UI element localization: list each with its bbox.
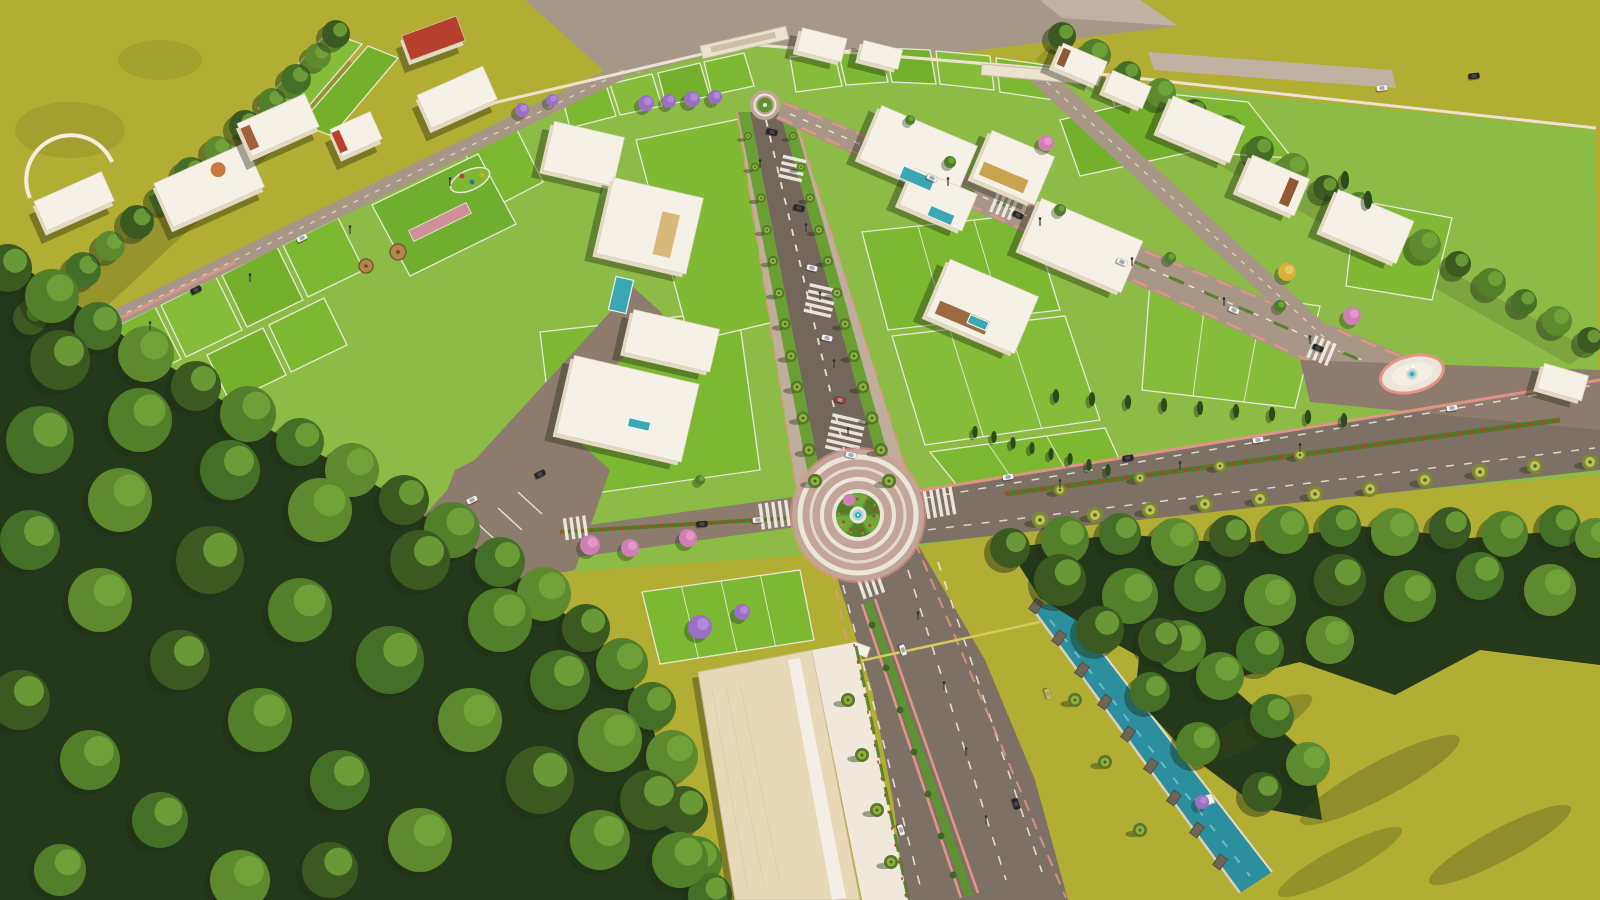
tree-highlight <box>1268 698 1290 720</box>
tree-highlight <box>234 856 264 886</box>
pink-tree-highlight <box>628 541 637 550</box>
car <box>695 521 707 529</box>
palm-crown <box>1103 760 1106 763</box>
tree-highlight <box>1092 42 1108 58</box>
lamp-head <box>847 427 850 430</box>
tree-highlight <box>1422 232 1438 248</box>
palm-crown <box>1139 477 1142 480</box>
tree-highlight <box>1521 292 1534 305</box>
tree-highlight <box>14 676 44 706</box>
tree-highlight <box>1226 519 1247 540</box>
tree-highlight <box>1335 559 1361 585</box>
palm-crown <box>1073 698 1076 701</box>
tree-highlight <box>383 633 417 667</box>
field-shadow-patch <box>118 40 202 80</box>
lamp-head <box>965 747 968 750</box>
tree-highlight <box>1194 726 1216 748</box>
lamp-head <box>1309 335 1312 338</box>
car-cabin <box>1471 74 1476 78</box>
cypress-tree <box>1305 410 1311 424</box>
cypress-tree <box>1364 191 1372 209</box>
tree-highlight <box>94 574 126 606</box>
tree-highlight <box>314 484 346 516</box>
tree-highlight <box>647 687 671 711</box>
tree-highlight <box>1500 516 1523 539</box>
tree-highlight <box>1455 254 1468 267</box>
tree-highlight <box>706 877 728 899</box>
palm-crown <box>792 135 794 137</box>
cypress-tree <box>1105 464 1110 476</box>
tree-highlight <box>1488 271 1503 286</box>
fountain-jet <box>857 514 859 516</box>
tree-highlight <box>674 838 702 866</box>
tree-highlight <box>1587 330 1600 343</box>
roundabout-fountain <box>763 103 767 107</box>
tree-highlight <box>1475 557 1499 581</box>
lamp-head <box>759 159 762 162</box>
purple-tree-highlight <box>713 92 720 99</box>
lamp-head <box>943 681 946 684</box>
street-tree-highlight <box>949 158 955 164</box>
lamp-head <box>1059 479 1062 482</box>
cypress-tree <box>1029 442 1034 454</box>
lamp-head <box>947 177 950 180</box>
median-shrub <box>883 665 890 672</box>
lamp-head <box>1131 257 1134 260</box>
tree-highlight <box>1258 776 1278 796</box>
tree-highlight <box>3 249 27 273</box>
palm-crown <box>853 355 856 358</box>
tree-highlight <box>1323 178 1336 191</box>
tree-highlight <box>1257 139 1271 153</box>
palm-crown <box>836 292 838 294</box>
tree-highlight <box>494 594 526 626</box>
palm-crown <box>778 292 780 294</box>
scene-canvas <box>0 0 1600 900</box>
palm-crown <box>766 229 768 231</box>
tree-highlight <box>84 736 114 766</box>
palm-crown <box>860 753 863 756</box>
palm-crown <box>1258 497 1262 501</box>
central-roundabout <box>791 448 925 582</box>
tree-highlight <box>1545 569 1571 595</box>
tree-highlight <box>594 816 624 846</box>
tree-highlight <box>294 584 326 616</box>
cypress-tree <box>991 431 996 443</box>
tree-highlight <box>1158 81 1173 96</box>
tree-highlight <box>495 542 520 567</box>
island-pink-tree <box>843 494 855 506</box>
car-cabin <box>1379 86 1384 90</box>
tree-highlight <box>33 413 67 447</box>
tree-highlight <box>134 394 166 426</box>
palm-crown <box>809 197 811 199</box>
cypress-tree <box>1233 404 1239 418</box>
palm-crown <box>1313 492 1317 496</box>
palm-crown <box>871 417 874 420</box>
tree-highlight <box>414 536 444 566</box>
tree-highlight <box>539 572 566 599</box>
median-shrub <box>897 707 904 714</box>
palm-crown <box>818 229 820 231</box>
car-cabin <box>755 518 760 522</box>
palm-crown <box>1299 454 1302 457</box>
tree-highlight <box>1336 509 1357 530</box>
palm-crown <box>1148 508 1152 512</box>
car <box>751 517 763 525</box>
palm-crown <box>1423 478 1427 482</box>
car-cabin <box>699 522 704 526</box>
median-shrub <box>925 791 932 798</box>
tree-highlight <box>1006 532 1026 552</box>
tree-highlight <box>1405 575 1431 601</box>
play-equipment-blue <box>470 180 475 185</box>
cypress-tree <box>1048 448 1053 460</box>
tree-highlight <box>414 814 446 846</box>
lamp-head <box>985 815 988 818</box>
tree-highlight <box>324 848 352 876</box>
tree-highlight <box>1055 559 1081 585</box>
palm-crown <box>1368 487 1372 491</box>
tree-highlight <box>679 791 703 815</box>
street-tree-highlight <box>1169 254 1175 260</box>
palm-crown <box>1588 460 1592 464</box>
street-tree-highlight <box>699 476 704 481</box>
palm-crown <box>754 166 756 168</box>
street-tree-highlight <box>1059 206 1065 212</box>
tree-highlight <box>203 533 237 567</box>
cypress-tree <box>1086 459 1091 471</box>
tree-highlight <box>1124 574 1152 602</box>
tree-highlight <box>1304 746 1326 768</box>
cypress-tree <box>1161 398 1167 412</box>
purple-tree-highlight <box>551 96 557 102</box>
tree-highlight <box>154 798 182 826</box>
tree-highlight <box>1280 511 1304 535</box>
tree-highlight <box>644 776 674 806</box>
purple-tree-highlight <box>697 618 709 630</box>
yellow-tree-highlight <box>1285 265 1294 274</box>
palm-crown <box>808 449 811 452</box>
purple-tree-highlight <box>1200 797 1207 804</box>
tree-highlight <box>1325 621 1349 645</box>
lamp-head <box>1179 461 1182 464</box>
palm-crown <box>784 323 787 326</box>
tree-highlight <box>24 516 54 546</box>
tree-highlight <box>47 274 74 301</box>
tree-highlight <box>533 753 567 787</box>
north-roundabout <box>750 90 780 120</box>
palm-crown <box>802 417 805 420</box>
purple-tree-highlight <box>667 96 674 103</box>
lamp-head <box>249 273 252 276</box>
tree-highlight <box>1170 523 1194 547</box>
palm-crown <box>827 260 829 262</box>
palm-shadow <box>737 138 746 142</box>
lamp-head <box>1223 297 1226 300</box>
cypress-tree <box>1125 395 1131 409</box>
purple-tree-highlight <box>740 606 748 614</box>
palm-crown <box>880 449 883 452</box>
median-shrub <box>911 749 918 756</box>
tree-highlight <box>554 656 584 686</box>
palm-crown <box>813 479 816 482</box>
palm-shadow <box>789 169 798 173</box>
lamp-head <box>1299 443 1302 446</box>
palm-crown <box>875 808 878 811</box>
tree-highlight <box>140 332 168 360</box>
cypress-tree <box>1053 389 1059 403</box>
purple-tree-highlight <box>690 93 698 101</box>
cypress-tree <box>1269 407 1275 421</box>
tree-highlight <box>174 636 204 666</box>
lamp-head <box>349 225 352 228</box>
palm-crown <box>1203 502 1207 506</box>
tree-highlight <box>1215 657 1239 681</box>
cypress-tree <box>1197 401 1203 415</box>
tree-highlight <box>1156 622 1178 644</box>
lamp-head <box>805 223 808 226</box>
palm-crown <box>1038 518 1042 522</box>
tree-highlight <box>1290 156 1306 172</box>
cypress-tree <box>1067 453 1072 465</box>
tree-highlight <box>93 307 117 331</box>
purple-tree-highlight <box>644 97 652 105</box>
tree-highlight <box>1255 631 1279 655</box>
gazebo-finial <box>396 250 400 254</box>
pink-tree-highlight <box>1044 137 1052 145</box>
median-shrub <box>950 872 957 879</box>
lamp-head <box>449 177 452 180</box>
palm-crown <box>889 860 892 863</box>
cypress-tree <box>972 426 977 438</box>
tree-highlight <box>1390 513 1414 537</box>
tree-highlight <box>55 849 81 875</box>
tree-highlight <box>1556 509 1577 530</box>
palm-crown <box>1093 513 1097 517</box>
tree-highlight <box>617 643 643 669</box>
tree-highlight <box>1195 565 1221 591</box>
tree-highlight <box>1265 579 1291 605</box>
tree-highlight <box>114 474 146 506</box>
palm-crown <box>1219 465 1222 468</box>
tree-highlight <box>224 446 254 476</box>
tree-highlight <box>464 694 496 726</box>
tree-highlight <box>347 448 374 475</box>
cypress-tree <box>1341 171 1349 189</box>
cypress-tree <box>1341 413 1347 427</box>
pink-tree-highlight <box>686 531 695 540</box>
median-shrub <box>869 622 876 629</box>
tree-highlight <box>1059 25 1073 39</box>
palm-shadow <box>782 138 791 142</box>
palm-crown <box>1138 828 1141 831</box>
play-equipment-yellow <box>480 173 485 178</box>
lamp-head <box>819 291 822 294</box>
palm-crown <box>1478 470 1482 474</box>
tree-highlight <box>254 694 286 726</box>
palm-crown <box>844 323 847 326</box>
palm-crown <box>772 260 774 262</box>
tree-highlight <box>333 23 347 37</box>
lamp-head <box>1039 217 1042 220</box>
palm-crown <box>796 386 799 389</box>
palm-crown <box>846 698 849 701</box>
palm-crown <box>790 355 793 358</box>
palm-crown <box>887 479 890 482</box>
tree-highlight <box>1554 309 1569 324</box>
tree-highlight <box>1125 64 1138 77</box>
lamp-head <box>149 321 152 324</box>
pink-tree-highlight <box>1350 309 1359 318</box>
palm-crown <box>747 135 749 137</box>
play-equipment-red <box>460 174 465 179</box>
tree-highlight <box>334 756 364 786</box>
cypress-tree <box>1010 437 1015 449</box>
palm-crown <box>760 197 762 199</box>
palm-crown <box>800 166 802 168</box>
tree-highlight <box>54 336 84 366</box>
palm-shadow <box>743 169 752 173</box>
tree-highlight <box>242 392 270 420</box>
pink-tree-highlight <box>588 538 598 548</box>
gazebo-finial <box>364 264 368 268</box>
tree-highlight <box>1060 521 1084 545</box>
palm-crown <box>1059 489 1062 492</box>
tree-highlight <box>191 366 216 391</box>
tree-highlight <box>1116 517 1137 538</box>
street-tree-highlight <box>909 116 914 121</box>
field-shadow-patch <box>15 102 125 158</box>
purple-tree-highlight <box>520 105 527 112</box>
lamp-head <box>917 611 920 614</box>
tree-highlight <box>667 735 693 761</box>
cypress-tree <box>1089 392 1095 406</box>
tree-highlight <box>446 508 474 536</box>
township-aerial-render <box>0 0 1600 900</box>
tree-highlight <box>295 423 319 447</box>
tree-highlight <box>1446 511 1467 532</box>
tree-highlight <box>399 480 424 505</box>
tree-highlight <box>581 609 605 633</box>
palm-crown <box>1533 464 1537 468</box>
street-tree-highlight <box>1279 302 1285 308</box>
palm-crown <box>862 386 865 389</box>
lamp-head <box>833 359 836 362</box>
tree-highlight <box>1095 611 1119 635</box>
tree-highlight <box>604 714 636 746</box>
median-shrub <box>938 833 945 840</box>
tree-highlight <box>1146 676 1166 696</box>
